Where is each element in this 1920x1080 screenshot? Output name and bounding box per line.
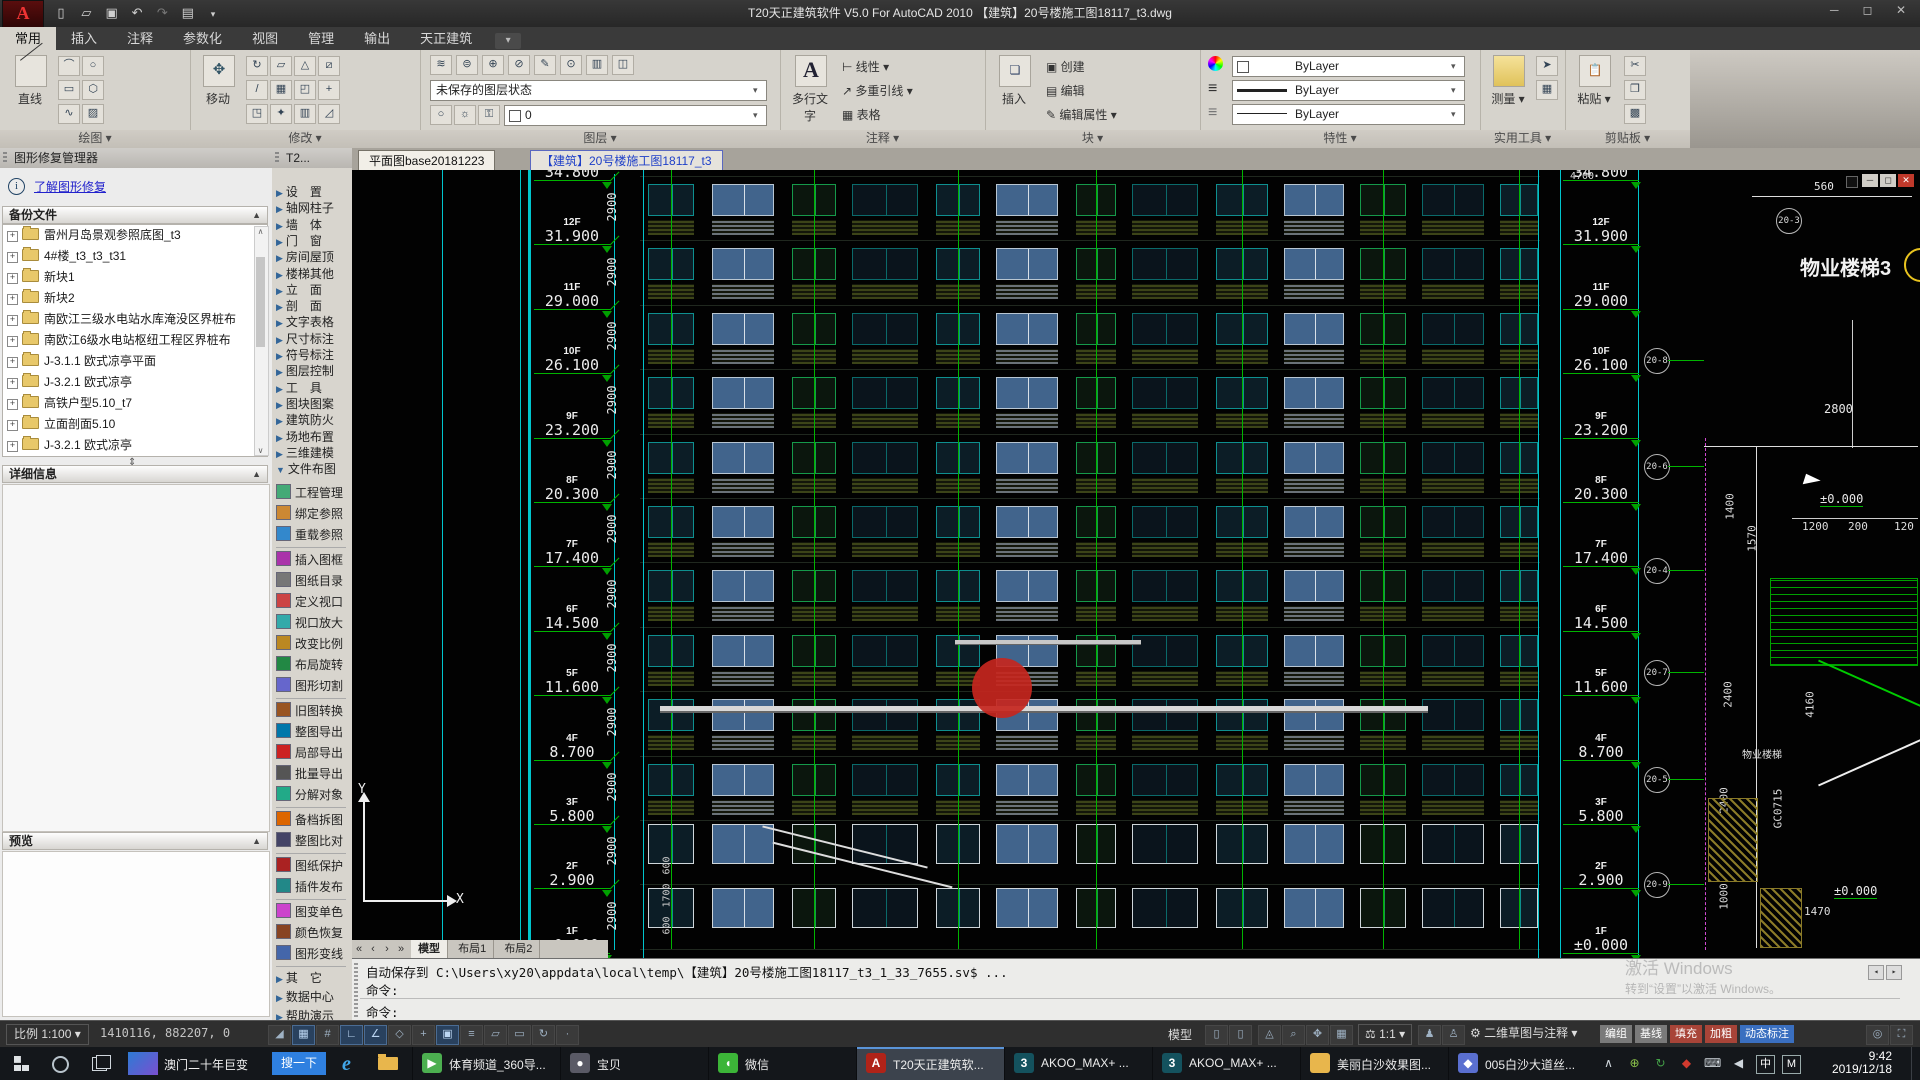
mini-close-icon[interactable]: ✕ — [1898, 174, 1914, 187]
tab-layout2[interactable]: 布局2 — [497, 940, 540, 958]
tray-volume-icon[interactable]: ◀ — [1730, 1055, 1747, 1072]
ribbon-tab-插入[interactable]: 插入 — [56, 27, 112, 50]
ribbon-tab-管理[interactable]: 管理 — [293, 27, 349, 50]
color-wheel-icon[interactable] — [1208, 56, 1223, 71]
palette-separator — [276, 853, 346, 854]
collapse-arrow-icon[interactable]: ▲ — [252, 207, 261, 223]
floor-elevation: 17.400 — [534, 550, 610, 567]
ribbon-tab-注释[interactable]: 注释 — [112, 27, 168, 50]
quickcalc-icon[interactable]: ▦ — [1536, 80, 1558, 100]
triangle-right-icon[interactable]: ▶ — [276, 286, 283, 296]
backup-file-item[interactable]: +立面剖面5.10 — [3, 414, 267, 435]
dropdown-caret-icon[interactable]: ▾ — [1451, 57, 1461, 75]
layer-tool-icon-2[interactable]: ⊕ — [482, 55, 504, 75]
modify-tool-icon-3[interactable]: ⧄ — [318, 56, 340, 76]
scrollbar-thumb[interactable] — [256, 257, 265, 347]
palette-tool-图纸保护[interactable]: 图纸保护 — [274, 856, 352, 877]
louver-strip — [996, 542, 1058, 557]
palette-category-尺寸标注[interactable]: ▶尺寸标注 — [274, 331, 350, 347]
palette-tool-局部导出[interactable]: 局部导出 — [274, 743, 352, 764]
palette-tool-整图比对[interactable]: 整图比对 — [274, 831, 352, 852]
group-label-实用工具[interactable]: 实用工具 ▾ — [1480, 130, 1565, 148]
palette-category-文字表格[interactable]: ▶文字表格 — [274, 314, 350, 330]
group-label-特性[interactable]: 特性 ▾ — [1200, 130, 1480, 148]
expand-icon[interactable]: + — [7, 357, 18, 368]
palette-category-三维建模[interactable]: ▶三维建模 — [274, 445, 350, 461]
triangle-right-icon[interactable]: ▶ — [276, 367, 283, 377]
ribbon-tab-常用[interactable]: 常用 — [0, 27, 56, 50]
mullion — [1454, 825, 1455, 863]
backup-files-section-header[interactable]: 备份文件 ▲ — [2, 206, 268, 224]
infer-icon[interactable]: ◢ — [268, 1025, 291, 1045]
palette-tool-布局旋转[interactable]: 布局旋转 — [274, 655, 352, 676]
palette-tool-图形切割[interactable]: 图形切割 — [274, 676, 352, 697]
backup-file-item[interactable]: +J-3.2.1 欧式凉亭 — [3, 435, 267, 456]
tray-update-icon[interactable]: ⊕ — [1626, 1055, 1643, 1072]
draw-tool-icon-0[interactable]: ⌒ — [58, 56, 80, 76]
palette-category-剖面[interactable]: ▶剖 面 — [274, 298, 350, 314]
backup-file-item[interactable]: +J-3.2.1 欧式凉亭 — [3, 372, 267, 393]
mini-menu-icon[interactable] — [1846, 176, 1858, 188]
mullion — [1315, 765, 1316, 795]
palette-category-场地布置[interactable]: ▶场地布置 — [274, 429, 350, 445]
taskbar-app-_360[interactable]: ▶ 体育频道_360导... — [412, 1047, 560, 1080]
pan-icon[interactable]: ✥ — [1306, 1025, 1329, 1045]
palette-category-图块图案[interactable]: ▶图块图案 — [274, 396, 350, 412]
layout-icon[interactable]: ▯ — [1205, 1025, 1228, 1045]
property-dropdown-ByLayer-2[interactable]: ByLayer▾ — [1232, 104, 1465, 125]
ribbon-tab-参数化[interactable]: 参数化 — [168, 27, 237, 50]
lineweight-icon[interactable]: ≡ — [1208, 104, 1217, 122]
mleader-button[interactable]: ↗ 多重引线 ▾ — [842, 82, 913, 99]
triangle-right-icon[interactable]: ▶ — [276, 204, 283, 214]
details-section-header[interactable]: 详细信息 ▲ — [2, 465, 268, 483]
fullscreen-icon[interactable]: ⛶ — [1890, 1025, 1913, 1045]
bylayer-value: ByLayer — [1295, 105, 1339, 123]
expand-icon[interactable]: + — [7, 294, 18, 305]
palette-category-房间屋顶[interactable]: ▶房间屋顶 — [274, 249, 350, 265]
palette-tool-分解对象[interactable]: 分解对象 — [274, 785, 352, 806]
palette-category-轴网柱子[interactable]: ▶轴网柱子 — [274, 200, 350, 216]
search-button[interactable]: 搜一下 — [272, 1052, 326, 1075]
expand-icon[interactable]: + — [7, 231, 18, 242]
backup-file-item[interactable]: +4#楼_t3_t3_t31 — [3, 246, 267, 267]
mullion — [744, 378, 745, 408]
backup-file-item[interactable]: +雷州月岛景观参照底图_t3 — [3, 225, 267, 246]
group-label-块[interactable]: 块 ▾ — [985, 130, 1200, 148]
backup-file-item[interactable]: +J-3.1.1 欧式凉亭平面 — [3, 351, 267, 372]
modify-tool-icon-8[interactable]: ◳ — [246, 104, 268, 124]
scroll-down-icon[interactable]: ∨ — [255, 446, 266, 455]
search-circle-icon[interactable] — [52, 1056, 69, 1073]
palette-tool-改变比例[interactable]: 改变比例 — [274, 634, 352, 655]
dim-line — [1752, 196, 1912, 197]
triangle-right-icon[interactable]: ▶ — [276, 253, 283, 263]
start-button-icon-part[interactable] — [14, 1065, 21, 1071]
doc-tab-plan[interactable]: 平面图base20181223 — [358, 150, 495, 170]
triangle-down-icon[interactable]: ▼ — [276, 465, 285, 475]
mullion — [1166, 765, 1167, 795]
app-label: 微信 — [745, 1056, 853, 1073]
ribbon-tab-视图[interactable]: 视图 — [237, 27, 293, 50]
floor-elevation: 5.800 — [534, 808, 610, 825]
copy-icon[interactable]: ❐ — [1624, 80, 1646, 100]
expand-icon[interactable]: + — [7, 273, 18, 284]
window — [1284, 184, 1344, 216]
maximize-button[interactable]: ◻ — [1853, 0, 1883, 22]
mullion — [959, 825, 960, 863]
mullion — [815, 765, 816, 795]
quickprop-icon[interactable]: ▭ — [508, 1025, 531, 1045]
taskbar-app-[interactable]: 美丽白沙效果图... — [1300, 1047, 1448, 1080]
draw-tool-icon-5[interactable]: ▨ — [82, 104, 104, 124]
modify-tool-icon-1[interactable]: ▱ — [270, 56, 292, 76]
drawing-canvas[interactable]: 13F 34.80012F 31.90011F 29.00010F 26.100… — [352, 170, 1920, 958]
draw-tool-icon-3[interactable]: ⬡ — [82, 80, 104, 100]
palette-tool-重载参照[interactable]: 重载参照 — [274, 525, 352, 546]
palette-category-图层控制[interactable]: ▶图层控制 — [274, 363, 350, 379]
triangle-right-icon[interactable]: ▶ — [276, 351, 283, 361]
line-button[interactable]: 直线 — [8, 52, 52, 128]
triangle-right-icon[interactable]: ▶ — [276, 384, 283, 394]
layout2-icon[interactable]: ▯ — [1229, 1025, 1252, 1045]
draw-tool-icon-1[interactable]: ○ — [82, 56, 104, 76]
toggle-chip-加粗[interactable]: 加粗 — [1705, 1025, 1737, 1043]
transparency-icon[interactable]: ▱ — [484, 1025, 507, 1045]
palette-category-符号标注[interactable]: ▶符号标注 — [274, 347, 350, 363]
palette-tool-图变单色[interactable]: 图变单色 — [274, 902, 352, 923]
expand-icon[interactable]: + — [7, 378, 18, 389]
collapse-arrow-icon[interactable]: ▲ — [252, 466, 261, 482]
layer-tool-icon-3[interactable]: ⊘ — [508, 55, 530, 75]
toggle-chip-填充[interactable]: 填充 — [1670, 1025, 1702, 1043]
mullion — [744, 700, 745, 730]
mullion — [959, 378, 960, 408]
linear-dim-button[interactable]: ⊢ 线性 ▾ — [842, 58, 889, 75]
floor-elevation: ±0.000 — [1563, 937, 1639, 954]
tray-input-indicator[interactable]: M — [1782, 1055, 1801, 1074]
collapse-arrow-icon[interactable]: ▲ — [252, 833, 261, 849]
internet-explorer-icon[interactable]: e — [342, 1053, 351, 1076]
mullion — [672, 700, 673, 730]
command-grip[interactable] — [354, 963, 358, 1017]
palette-tool-图纸目录[interactable]: 图纸目录 — [274, 571, 352, 592]
expand-icon[interactable]: + — [7, 441, 18, 452]
layer-tool-icon-7[interactable]: ◫ — [612, 55, 634, 75]
palette-category-文件布图[interactable]: ▼文件布图 — [274, 461, 350, 477]
ribbon-collapse-icon[interactable]: ▾ — [495, 33, 521, 49]
linetype-icon[interactable]: ≡ — [1208, 80, 1217, 98]
group-label-绘图[interactable]: 绘图 ▾ — [0, 130, 190, 148]
snap-icon[interactable]: ▦ — [292, 1025, 315, 1045]
backup-file-item[interactable]: +新块1 — [3, 267, 267, 288]
palette-tool-插入图框[interactable]: 插入图框 — [274, 550, 352, 571]
layer-tool-icon-4[interactable]: ✎ — [534, 55, 556, 75]
create-block-button[interactable]: ▣ 创建 — [1046, 58, 1085, 75]
palette-tool-工程管理[interactable]: 工程管理 — [274, 483, 352, 504]
palette-tool-整图导出[interactable]: 整图导出 — [274, 722, 352, 743]
mullion — [1454, 765, 1455, 795]
paste-button[interactable]: 📋粘贴 ▾ — [1572, 52, 1616, 128]
palette-tool-颜色恢复[interactable]: 颜色恢复 — [274, 923, 352, 944]
backup-file-item[interactable]: +新块2 — [3, 288, 267, 309]
palette-tool-旧图转换[interactable]: 旧图转换 — [274, 701, 352, 722]
dropdown-caret-icon[interactable]: ▾ — [753, 106, 763, 124]
mini-restore-icon[interactable]: ◻ — [1880, 174, 1896, 187]
edit-block-button[interactable]: ▤ 编辑 — [1046, 82, 1085, 99]
prev-tab-icon[interactable]: ‹ — [366, 940, 380, 958]
toggle-chip-动态标注[interactable]: 动态标注 — [1740, 1025, 1794, 1043]
window — [1284, 506, 1344, 538]
command-scroll-left-icon[interactable]: ◂ — [1868, 965, 1884, 980]
backup-file-item[interactable]: +南欧江6级水电站枢纽工程区界桩布 — [3, 330, 267, 351]
modify-tool-icon-5[interactable]: ▦ — [270, 80, 292, 100]
louver-strip — [1284, 349, 1344, 364]
preview-section-header[interactable]: 预览 ▲ — [2, 832, 268, 850]
panel-grip[interactable] — [3, 152, 7, 164]
palette-tool-批量导出[interactable]: 批量导出 — [274, 764, 352, 785]
toggle-chip-基线[interactable]: 基线 — [1635, 1025, 1667, 1043]
window — [996, 377, 1058, 409]
mullion — [959, 765, 960, 795]
palette-grip[interactable] — [275, 152, 279, 164]
command-scroll-right-icon[interactable]: ▸ — [1886, 965, 1902, 980]
tray-chevron-icon[interactable]: ∧ — [1600, 1055, 1617, 1072]
window — [1284, 635, 1344, 667]
recovery-panel-title[interactable]: 图形修复管理器 — [0, 148, 272, 168]
dropdown-caret-icon[interactable]: ▾ — [1451, 105, 1461, 123]
taskbar-app-[interactable]: ● 宝贝 — [560, 1047, 708, 1080]
app-label: 体育频道_360导... — [449, 1056, 557, 1073]
command-input[interactable]: 命令: — [366, 1002, 399, 1021]
ortho-icon[interactable]: ∟ — [340, 1025, 363, 1045]
scale-dropdown[interactable]: 比例 1:100 ▾ — [6, 1024, 89, 1045]
group-label-注释[interactable]: 注释 ▾ — [780, 130, 985, 148]
tool-icon — [276, 614, 291, 629]
palette-category-其它[interactable]: ▶其 它 — [274, 969, 350, 987]
doc-tab-building[interactable]: 【建筑】20号楼施工图18117_t3 — [530, 150, 723, 170]
palette-category-墙体[interactable]: ▶墙 体 — [274, 217, 350, 233]
modify-tool-icon-7[interactable]: + — [318, 80, 340, 100]
sun-icon[interactable]: ☼ — [454, 105, 476, 125]
expand-icon[interactable]: + — [7, 336, 18, 347]
taskbar-app-[interactable]: ◖ 微信 — [708, 1047, 856, 1080]
taskbar-app-AKOO_MAX[interactable]: 3 AKOO_MAX+ ... — [1004, 1047, 1152, 1080]
backup-file-item[interactable]: +南欧江三级水电站水库淹没区界桩布 — [3, 309, 267, 330]
triangle-right-icon[interactable]: ▶ — [276, 335, 283, 345]
modify-tool-icon-11[interactable]: ◿ — [318, 104, 340, 124]
triangle-right-icon[interactable]: ▶ — [276, 318, 283, 328]
palette-tool-定义视口[interactable]: 定义视口 — [274, 592, 352, 613]
palette-category-建筑防火[interactable]: ▶建筑防火 — [274, 412, 350, 428]
layer-tool-icon-0[interactable]: ≋ — [430, 55, 452, 75]
modify-tool-icon-10[interactable]: ▥ — [294, 104, 316, 124]
modify-tool-icon-2[interactable]: △ — [294, 56, 316, 76]
edit-attr-button[interactable]: ✎ 编辑属性 ▾ — [1046, 106, 1117, 123]
table-button[interactable]: ▦ 表格 — [842, 106, 881, 123]
otrack-icon[interactable]: + — [412, 1025, 435, 1045]
tab-layout1[interactable]: 布局1 — [451, 940, 494, 958]
expand-icon[interactable]: + — [7, 420, 18, 431]
triangle-right-icon[interactable]: ▶ — [276, 221, 283, 231]
floor-elevation: 31.900 — [1563, 228, 1639, 245]
measure-button[interactable]: 测量 ▾ — [1486, 52, 1530, 128]
louver-strip — [1422, 413, 1484, 428]
palette-category-工具[interactable]: ▶工 具 — [274, 380, 350, 396]
tool-icon — [276, 945, 291, 960]
move-button-icon: ✥ — [203, 55, 235, 87]
isolate-icon[interactable]: ◎ — [1866, 1025, 1889, 1045]
triangle-right-icon[interactable]: ▶ — [276, 188, 283, 198]
first-tab-icon[interactable]: « — [352, 940, 366, 958]
ribbon-tab-输出[interactable]: 输出 — [349, 27, 405, 50]
tray-ime-icon[interactable]: ◆ — [1678, 1055, 1695, 1072]
ribbon-tab-天正建筑[interactable]: 天正建筑 — [405, 27, 487, 50]
group-label-修改[interactable]: 修改 ▾ — [190, 130, 420, 148]
annotation-vis-icon[interactable]: ◬ — [1258, 1025, 1281, 1045]
palette-tool-图形变线[interactable]: 图形变线 — [274, 944, 352, 965]
workspace-switch[interactable]: ⚙ 二维草图与注释 ▾ — [1470, 1024, 1577, 1043]
triangle-right-icon[interactable]: ▶ — [276, 237, 283, 247]
mullion — [1384, 185, 1385, 215]
louver-strip — [1284, 671, 1344, 686]
backup-list-scrollbar[interactable]: ∧ ∨ — [254, 226, 269, 456]
palette-tool-视口放大[interactable]: 视口放大 — [274, 613, 352, 634]
property-dropdown-ByLayer-1[interactable]: ByLayer▾ — [1232, 80, 1465, 101]
palette-tool-绑定参照[interactable]: 绑定参照 — [274, 504, 352, 525]
next-tab-icon[interactable]: › — [380, 940, 394, 958]
tray-lang-indicator[interactable]: 中 — [1756, 1055, 1775, 1074]
mtext-button[interactable]: A多行文字 — [788, 52, 832, 128]
bubble-leader — [1668, 570, 1704, 571]
expand-icon[interactable]: + — [7, 315, 18, 326]
palette-category-立面[interactable]: ▶立 面 — [274, 282, 350, 298]
modify-tool-icon-4[interactable]: / — [246, 80, 268, 100]
layer-tool-icon-6[interactable]: ▥ — [586, 55, 608, 75]
mullion — [1097, 825, 1098, 863]
tray-keyboard-icon[interactable]: ⌨ — [1704, 1055, 1721, 1072]
louver-strip — [1132, 284, 1198, 299]
taskbar-app-005[interactable]: ◆ 005白沙大道丝... — [1448, 1047, 1596, 1080]
move-button-label: 移动 — [196, 90, 240, 107]
minimize-button[interactable]: ─ — [1819, 0, 1849, 22]
dyn-icon[interactable]: · — [556, 1025, 579, 1045]
palette-tool-备档拆图[interactable]: 备档拆图 — [274, 810, 352, 831]
draw-tool-icon-4[interactable]: ∿ — [58, 104, 80, 124]
bylayer-value: ByLayer — [1295, 57, 1339, 75]
palette-header[interactable]: T2... — [272, 148, 352, 168]
palette-category-楼梯其他[interactable]: ▶楼梯其他 — [274, 266, 350, 282]
bulb-icon[interactable]: ○ — [430, 105, 452, 125]
cycling-icon[interactable]: ↻ — [532, 1025, 555, 1045]
cut-icon[interactable]: ✂ — [1624, 56, 1646, 76]
dim-small: 600 — [662, 851, 673, 881]
group-label-剪贴板[interactable]: 剪贴板 ▾ — [1565, 130, 1690, 148]
taskbar-app-T20[interactable]: A T20天正建筑软... — [856, 1047, 1004, 1080]
mini-minimize-icon[interactable]: ─ — [1862, 174, 1878, 187]
dim-small: 1700 — [662, 881, 673, 911]
zoom-icon[interactable]: ⌕ — [1282, 1025, 1305, 1045]
dim-2900: 2900 — [605, 368, 619, 432]
property-dropdown-ByLayer-0[interactable]: ByLayer▾ — [1232, 56, 1465, 77]
tab-model[interactable]: 模型 — [411, 940, 448, 958]
file-explorer-icon[interactable] — [378, 1057, 398, 1070]
triangle-right-icon[interactable]: ▶ — [276, 974, 283, 984]
learn-repair-link[interactable]: 了解图形修复 — [34, 178, 106, 195]
grid-icon[interactable]: # — [316, 1025, 339, 1045]
window — [996, 313, 1058, 345]
triangle-right-icon[interactable]: ▶ — [276, 270, 283, 280]
triangle-right-icon[interactable]: ▶ — [276, 449, 283, 459]
mullion — [1520, 443, 1521, 473]
plan-dim — [1792, 518, 1918, 519]
current-layer-dropdown[interactable]: 0▾ — [504, 105, 767, 126]
dropdown-caret-icon[interactable]: ▾ — [753, 81, 763, 99]
triangle-right-icon[interactable]: ▶ — [276, 400, 283, 410]
polar-icon[interactable]: ∠ — [364, 1025, 387, 1045]
palette-category-门窗[interactable]: ▶门 窗 — [274, 233, 350, 249]
mullion — [959, 571, 960, 601]
modify-tool-icon-6[interactable]: ◰ — [294, 80, 316, 100]
select-icon[interactable]: ➤ — [1536, 56, 1558, 76]
layer-tool-icon-5[interactable]: ⊙ — [560, 55, 582, 75]
annotation-scale-dropdown[interactable]: ⚖ 1:1 ▾ — [1358, 1024, 1412, 1045]
palette-category-设置[interactable]: ▶设 置 — [274, 184, 350, 200]
toggle-chip-编组[interactable]: 编组 — [1600, 1025, 1632, 1043]
news-widget-thumbnail[interactable] — [128, 1052, 158, 1075]
modify-tool-icon-9[interactable]: ✦ — [270, 104, 292, 124]
triangle-right-icon[interactable]: ▶ — [276, 302, 283, 312]
isodraft-icon[interactable]: ◇ — [388, 1025, 411, 1045]
insert-block-button[interactable]: ❏插入 — [992, 52, 1036, 128]
mullion — [744, 249, 745, 279]
expand-icon[interactable]: + — [7, 399, 18, 410]
bubble-leader — [1668, 884, 1704, 885]
layer-tool-icon-1[interactable]: ⊜ — [456, 55, 478, 75]
show-desktop-button[interactable] — [1911, 1047, 1920, 1080]
group-label-图层[interactable]: 图层 ▾ — [420, 130, 780, 148]
modify-tool-icon-0[interactable]: ↻ — [246, 56, 268, 76]
triangle-right-icon[interactable]: ▶ — [276, 433, 283, 443]
taskbar-app-AKOO_MAX[interactable]: 3 AKOO_MAX+ ... — [1152, 1047, 1300, 1080]
paste-special-icon[interactable]: ▩ — [1624, 104, 1646, 124]
user-icon[interactable]: ♟ — [1418, 1025, 1441, 1045]
last-tab-icon[interactable]: » — [394, 940, 408, 958]
mullion — [1384, 314, 1385, 344]
expand-icon[interactable]: + — [7, 252, 18, 263]
osnap-icon[interactable]: ▣ — [436, 1025, 459, 1045]
task-view-icon[interactable] — [92, 1057, 107, 1071]
draw-tool-icon-2[interactable]: ▭ — [58, 80, 80, 100]
move-button[interactable]: ✥移动 — [196, 52, 240, 128]
palette-category-数据中心[interactable]: ▶数据中心 — [274, 988, 350, 1006]
palette-tool-插件发布[interactable]: 插件发布 — [274, 877, 352, 898]
layer-state-dropdown[interactable]: 未保存的图层状态▾ — [430, 80, 767, 101]
lineweight-icon[interactable]: ≡ — [460, 1025, 483, 1045]
scroll-up-icon[interactable]: ∧ — [255, 227, 266, 236]
user2-icon[interactable]: ♙ — [1442, 1025, 1465, 1045]
news-widget-text[interactable]: 澳门二十年巨变 — [164, 1056, 248, 1073]
triangle-right-icon[interactable]: ▶ — [276, 416, 283, 426]
triangle-right-icon[interactable]: ▶ — [276, 993, 283, 1003]
close-button[interactable]: ✕ — [1886, 0, 1916, 22]
lock-icon[interactable]: ⚿ — [478, 105, 500, 125]
taskbar-clock[interactable]: 9:42 2019/12/18 — [1832, 1050, 1892, 1076]
backup-file-item[interactable]: +高铁户型5.10_t7 — [3, 393, 267, 414]
tray-sync-icon[interactable]: ↻ — [1652, 1055, 1669, 1072]
dropdown-caret-icon[interactable]: ▾ — [1451, 81, 1461, 99]
grid-display-icon[interactable]: ▦ — [1330, 1025, 1353, 1045]
